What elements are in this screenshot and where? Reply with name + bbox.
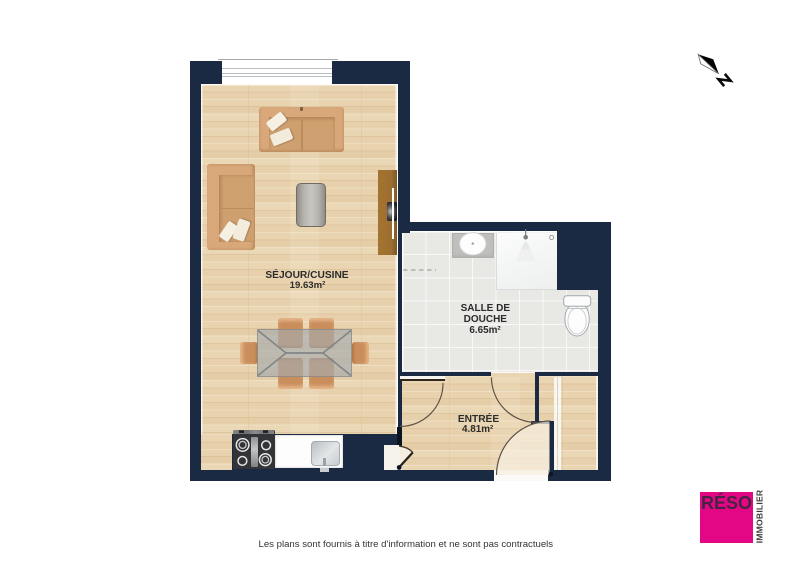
svg-text:IMMOBILIER: IMMOBILIER [754,489,764,543]
